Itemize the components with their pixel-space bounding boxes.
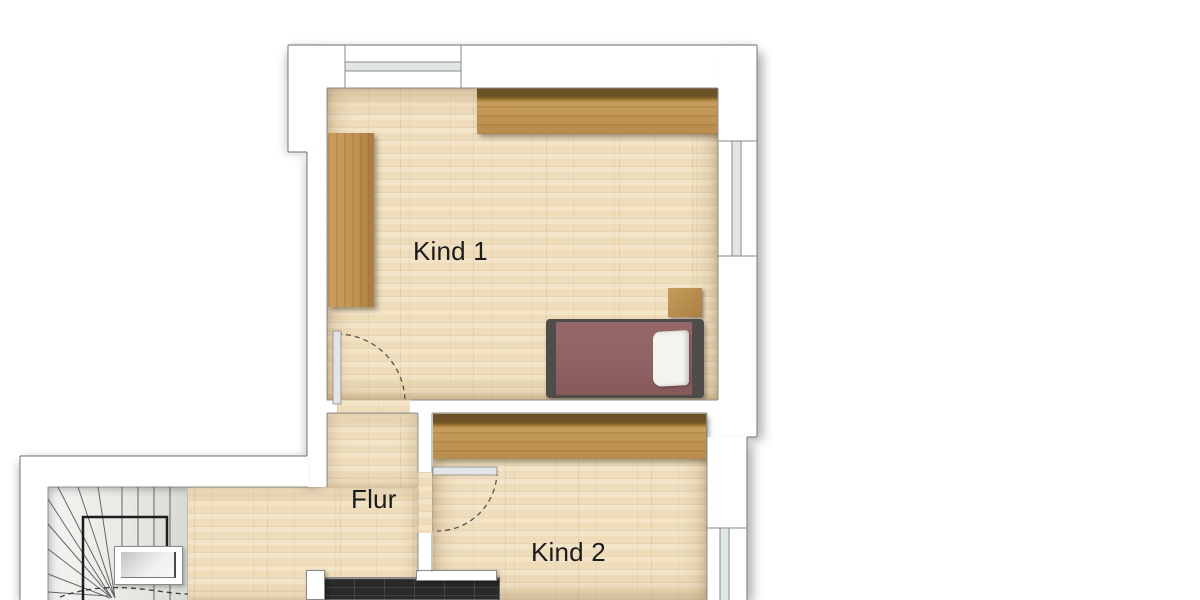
nightstand	[668, 288, 702, 317]
room-label-flur: Flur	[351, 484, 397, 515]
room-label-kind1: Kind 1	[413, 236, 488, 267]
wall-stub-bath-tee	[416, 570, 497, 581]
chimney-shaft	[114, 546, 183, 585]
wall-kind1-south-left	[307, 400, 337, 413]
wall-west-lower	[20, 456, 48, 600]
floor-door-gap-kind2	[418, 472, 432, 533]
wall-kind2-west-lower	[418, 533, 433, 572]
wardrobe-kind1-top	[477, 88, 718, 134]
room-label-kind2: Kind 2	[531, 537, 606, 568]
floor-plan-canvas: Kind 1 Flur Kind 2	[0, 0, 1200, 600]
wall-east-upper	[718, 45, 757, 437]
wall-kind1-south-right	[410, 400, 757, 413]
wardrobe-kind1-left	[328, 133, 374, 307]
wall-west-mid	[307, 152, 327, 487]
wall-east-lower	[707, 437, 747, 600]
wall-west-upper	[288, 45, 327, 152]
wall-stub-bath-left	[306, 570, 325, 600]
floor-door-gap-kind1	[337, 400, 410, 413]
wardrobe-kind2-top	[432, 414, 706, 459]
floor-flur-upper	[327, 413, 418, 487]
chimney-flue	[121, 552, 176, 578]
wall-north	[288, 45, 757, 88]
wall-kind2-west-upper	[418, 413, 433, 472]
bed-pillow	[653, 330, 689, 387]
bed	[546, 319, 704, 398]
wall-flur-north-band	[20, 456, 308, 487]
